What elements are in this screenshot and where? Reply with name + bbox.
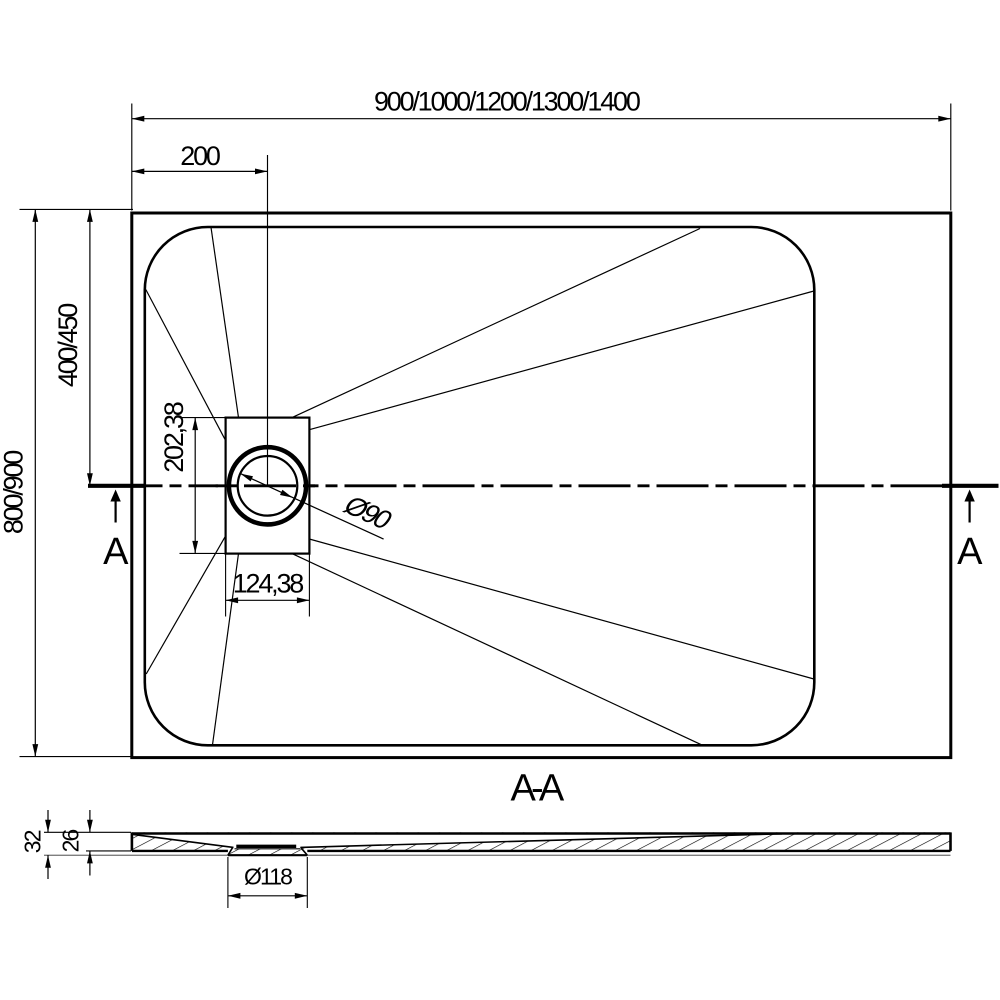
svg-text:202,38: 202,38	[159, 402, 189, 473]
svg-text:26: 26	[58, 830, 84, 853]
svg-text:A: A	[103, 531, 129, 573]
svg-text:400/450: 400/450	[53, 304, 83, 387]
svg-text:Ø118: Ø118	[244, 864, 292, 890]
svg-text:A: A	[957, 531, 983, 573]
svg-text:800/900: 800/900	[0, 451, 28, 534]
svg-text:200: 200	[180, 141, 220, 171]
svg-text:A-A: A-A	[511, 768, 565, 810]
svg-text:124,38: 124,38	[233, 569, 304, 599]
svg-text:32: 32	[19, 830, 45, 853]
svg-text:900/1000/1200/1300/1400: 900/1000/1200/1300/1400	[374, 87, 640, 117]
